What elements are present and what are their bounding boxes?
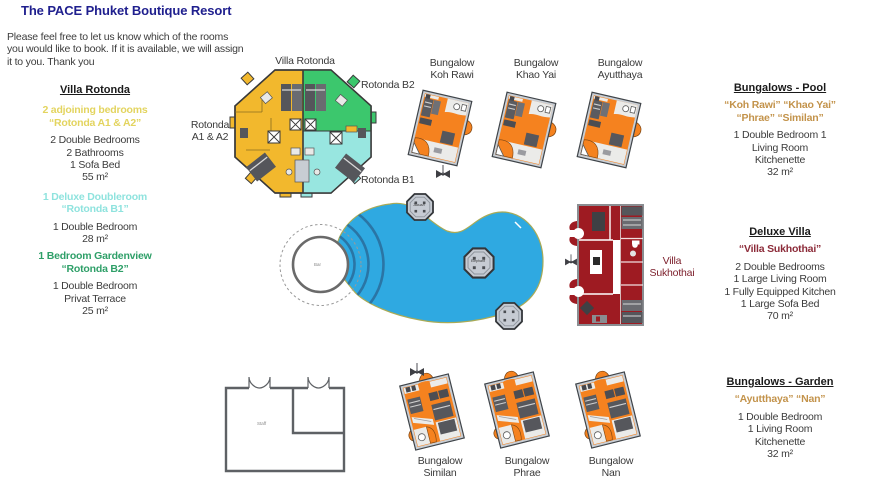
svg-text:Bungalow: Bungalow [418, 455, 463, 467]
svg-text:Khao Yai: Khao Yai [516, 69, 556, 81]
svg-text:Bungalow: Bungalow [589, 455, 634, 467]
svg-text:Rotonda B1: Rotonda B1 [361, 174, 415, 186]
svg-text:Bungalow: Bungalow [505, 455, 550, 467]
svg-text:Bar: Bar [314, 262, 322, 267]
svg-text:Rotonda: Rotonda [191, 119, 230, 131]
svg-text:Staff: Staff [257, 421, 267, 426]
svg-text:Similan: Similan [423, 467, 456, 479]
svg-text:Ayutthaya: Ayutthaya [598, 69, 643, 81]
svg-text:Rotonda B2: Rotonda B2 [361, 79, 415, 91]
svg-text:Villa Rotonda: Villa Rotonda [275, 55, 335, 67]
svg-text:A1 & A2: A1 & A2 [192, 131, 229, 143]
svg-text:Nan: Nan [602, 467, 621, 479]
svg-text:Bungalow: Bungalow [598, 57, 643, 69]
svg-text:Koh Rawi: Koh Rawi [430, 69, 473, 81]
svg-text:Jacuzzi: Jacuzzi [413, 203, 425, 207]
svg-text:Bungalow: Bungalow [514, 57, 559, 69]
svg-text:Elephant: Elephant [471, 259, 485, 263]
svg-text:Phrae: Phrae [513, 467, 540, 479]
svg-text:Sukhothai: Sukhothai [650, 267, 695, 279]
svg-text:Bungalow: Bungalow [430, 57, 475, 69]
svg-text:Villa: Villa [663, 255, 682, 267]
